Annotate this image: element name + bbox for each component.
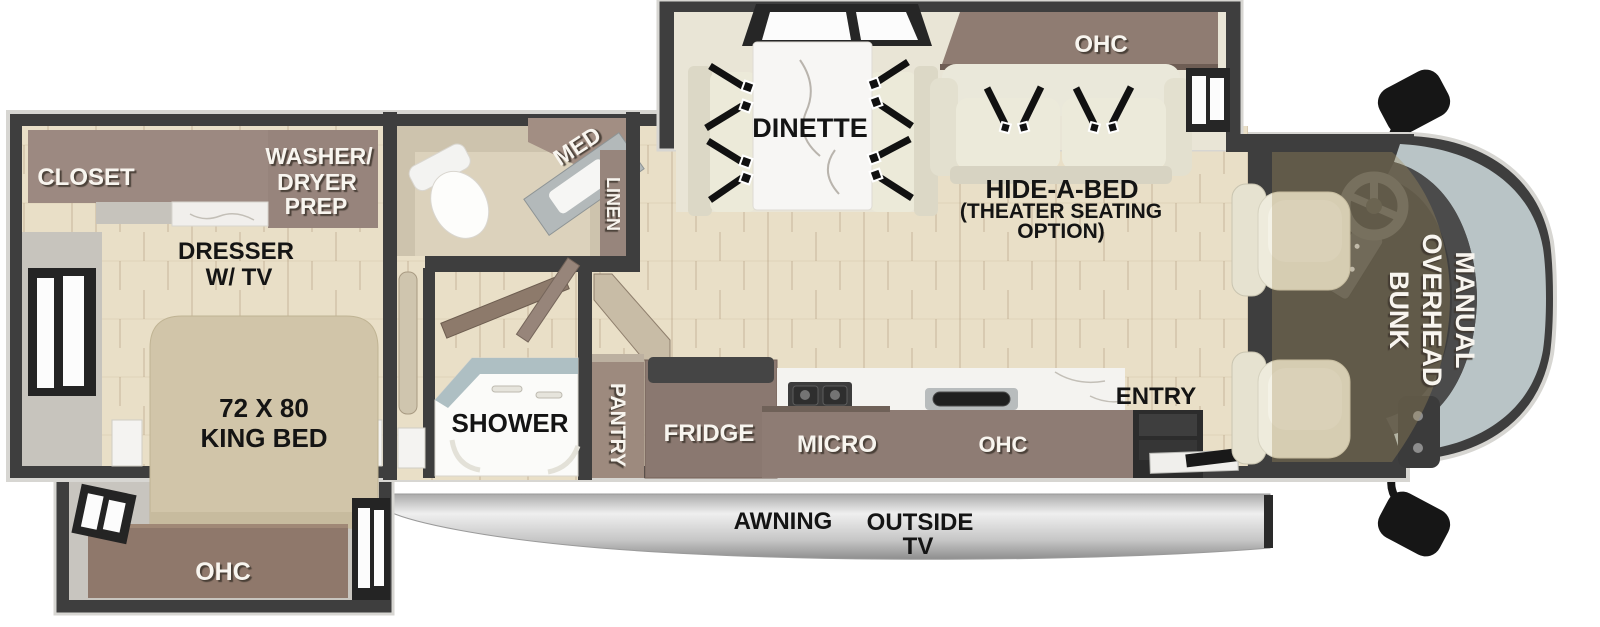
pantry-label: PANTRY [606, 383, 629, 467]
bunk-label-1: MANUAL [1450, 252, 1480, 369]
floorplan-canvas: CLOSET WASHER/ DRYER PREP DRESSER W/ TV … [0, 0, 1600, 627]
bunk-label-3: BUNK [1384, 271, 1414, 349]
washer-dryer-label-3: PREP [285, 193, 348, 219]
fridge-top [648, 357, 774, 383]
awning-end-cap [1264, 495, 1273, 548]
dresser-label-2: W/ TV [206, 264, 273, 291]
shower-label: SHOWER [452, 408, 569, 438]
king-bed-label-1: 72 X 80 [219, 393, 309, 423]
entry-label: ENTRY [1116, 383, 1196, 410]
living-ohc-label: OHC [1074, 31, 1127, 58]
micro-label: MICRO [797, 431, 877, 458]
hide-a-bed-label-3: OPTION) [1017, 220, 1105, 243]
washer-dryer-label-2: DRYER [277, 169, 357, 195]
bath-door-leaf [399, 272, 417, 414]
hall-marble-block [398, 428, 425, 468]
wall-kitchen-left [578, 264, 592, 480]
outside-tv-label-2: TV [903, 533, 934, 560]
kitchen-sink [925, 388, 1018, 410]
ohc-band-lip [762, 406, 890, 412]
fridge-label: FRIDGE [664, 420, 755, 447]
living-window-right [1186, 68, 1230, 132]
wall-bath-right [626, 112, 640, 272]
wall-bath-bottom [425, 256, 640, 272]
dinette-label: DINETTE [752, 113, 868, 143]
bunk-label-2: OVERHEAD [1417, 233, 1447, 386]
dresser-shelf [96, 202, 172, 224]
wall-bedroom-bath [383, 112, 397, 480]
wall-top-right [1226, 134, 1414, 152]
stove-cooktop [788, 382, 852, 410]
awning-label: AWNING [734, 508, 833, 535]
dresser-counter [172, 202, 268, 226]
closet-label: CLOSET [37, 164, 135, 191]
rv-floorplan-diagram: CLOSET WASHER/ DRYER PREP DRESSER W/ TV … [0, 0, 1600, 627]
kitchen-ohc-label: OHC [979, 432, 1028, 457]
bedroom-ohc-label: OHC [195, 558, 251, 586]
dresser-label-1: DRESSER [178, 238, 294, 265]
linen-label: LINEN [603, 177, 623, 231]
outside-tv-label-1: OUTSIDE [867, 509, 974, 536]
bedroom-window-left [28, 268, 96, 396]
king-bed-label-2: KING BED [200, 423, 327, 453]
slideout-window-right [352, 498, 390, 600]
dinette-window [742, 4, 932, 46]
nightstand-left [112, 420, 142, 466]
washer-dryer-label-1: WASHER/ [265, 143, 373, 169]
